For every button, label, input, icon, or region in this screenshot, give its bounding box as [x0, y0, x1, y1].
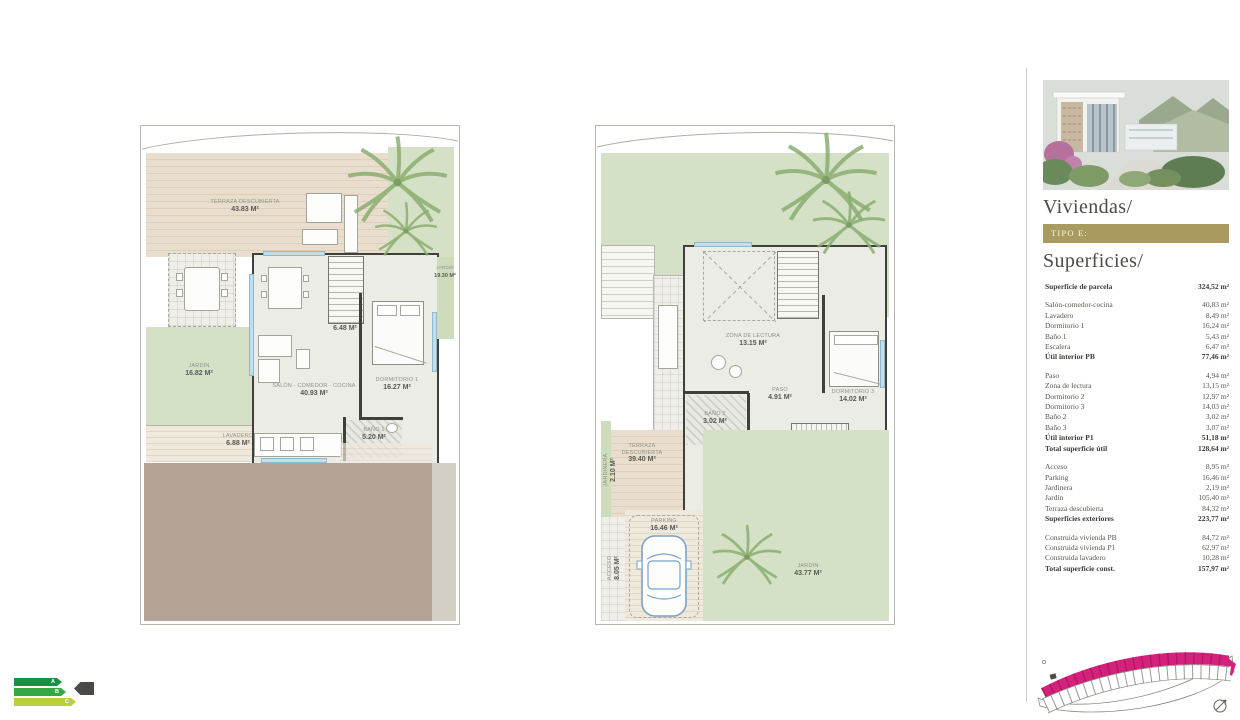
acceso-label: ACCESO 8.05 m² [607, 541, 621, 595]
surface-label: Útil interior PB [1045, 352, 1095, 362]
window-pb-west [250, 275, 253, 375]
garden-top-right-pb [388, 147, 454, 257]
surface-label: Parking [1045, 473, 1068, 483]
surface-value: 51,18 m² [1202, 433, 1229, 443]
surface-row: Construida lavadero 10,28 m² [1045, 553, 1229, 563]
staircase-p1 [777, 251, 819, 319]
surface-row: Dormitorio 1 16,24 m² [1045, 321, 1229, 331]
surface-row: Zona de lectura 13,15 m² [1045, 381, 1229, 391]
surface-label: Jardinera [1045, 483, 1072, 493]
surface-value: 223,77 m² [1198, 514, 1229, 524]
dormitorio3-label: DORMITORIO 3 14.02 m² [825, 389, 881, 403]
surface-value: 40,83 m² [1202, 300, 1229, 310]
surface-value: 8,95 m² [1206, 462, 1229, 472]
surface-label: Total superficie const. [1045, 564, 1115, 574]
jardin-left-label: JARDÍN 16.82 m² [168, 363, 230, 377]
garden-bottom-p1 [703, 430, 889, 621]
dormitorio1-label: DORMITORIO 1 16.27 m² [366, 377, 428, 391]
surface-label: Acceso [1045, 462, 1067, 472]
window-p1-north [695, 243, 751, 246]
outdoor-sofa-drawing [306, 193, 342, 223]
energy-rating-icon: A B C [12, 676, 122, 716]
sidebar-divider [1026, 68, 1027, 702]
surface-label: Superficie de parcela [1045, 282, 1112, 292]
bed-drawing-dorm1 [372, 301, 424, 365]
surface-label: Escalera [1045, 342, 1070, 352]
surface-value: 13,15 m² [1202, 381, 1229, 391]
surface-value: 128,64 m² [1198, 444, 1229, 454]
surface-value: 2,19 m² [1206, 483, 1229, 493]
surface-value: 10,28 m² [1202, 553, 1229, 563]
terraza-pb-label: TERRAZA DESCUBIERTA 43.83 m² [200, 199, 290, 213]
surface-row: Dormitorio 3 14,03 m² [1045, 402, 1229, 412]
surface-label: Construida lavadero [1045, 553, 1106, 563]
sofa-drawing [258, 335, 292, 357]
surface-value: 6,47 m² [1206, 342, 1229, 352]
surface-row: Superficie de parcela 324,52 m² [1045, 282, 1229, 292]
double-height-void [703, 251, 775, 321]
surface-label: Paso [1045, 371, 1059, 381]
surface-row: Acceso 8,95 m² [1045, 462, 1229, 472]
terraza-p1-label: TERRAZA DESCUBIERTA 39.40 m² [609, 443, 675, 464]
floor-plan-ground: TERRAZA DESCUBIERTA 43.83 m² JARDÍN 16.8… [140, 125, 460, 625]
car-drawing [635, 533, 693, 619]
surface-row: Dormitorio 2 12,97 m² [1045, 392, 1229, 402]
surface-row: Total superficie const. 157,97 m² [1045, 564, 1229, 574]
armchair-drawing [711, 355, 726, 370]
surface-label: Zona de lectura [1045, 381, 1092, 391]
armchair-drawing [729, 365, 742, 378]
surface-label: Superficies exteriores [1045, 514, 1114, 524]
surface-row: Baño 3 3,07 m² [1045, 423, 1229, 433]
surface-label: Baño 3 [1045, 423, 1066, 433]
surface-label: Construida vivienda PB [1045, 533, 1117, 543]
terrain-zone-pb [144, 463, 432, 621]
jardin-right-label: JARDÍN 19.30 m² [424, 265, 466, 279]
surface-row: Salón-comedor-cocina 40,83 m² [1045, 300, 1229, 310]
north-arrow-icon [1214, 700, 1226, 712]
site-plan-graphic [1028, 632, 1240, 720]
surface-row: Baño 2 3,02 m² [1045, 412, 1229, 422]
surface-label: Lavadero [1045, 311, 1073, 321]
surface-value: 8,49 m² [1206, 311, 1229, 321]
surface-row: Total superficie útil 128,64 m² [1045, 444, 1229, 454]
jardin-p1-label: JARDÍN 43.77 m² [777, 563, 839, 577]
surface-label: Dormitorio 3 [1045, 402, 1084, 412]
surface-value: 84,32 m² [1202, 504, 1229, 514]
surface-label: Construida vivienda P1 [1045, 543, 1115, 553]
surface-value: 105,40 m² [1198, 493, 1229, 503]
sink-drawing [386, 423, 398, 433]
surface-value: 157,97 m² [1198, 564, 1229, 574]
surface-row: Construida vivienda PB 84,72 m² [1045, 533, 1229, 543]
surface-row: Construida vivienda P1 62,97 m² [1045, 543, 1229, 553]
energy-bar-b: B [14, 688, 66, 696]
surface-row: Parking 16,46 m² [1045, 473, 1229, 483]
floor-plan-first: ZONA DE LECTURA 13.15 m² PASO 4.91 m² BA… [595, 125, 895, 625]
surface-label: Dormitorio 2 [1045, 392, 1084, 402]
surface-value: 16,46 m² [1202, 473, 1229, 483]
surface-value: 3,07 m² [1206, 423, 1229, 433]
energy-pointer-icon [74, 682, 94, 695]
type-badge: TIPO E: [1043, 224, 1229, 243]
energy-bar-c: C [14, 698, 76, 706]
window-pb-north [264, 252, 324, 255]
energy-bar-a: A [14, 678, 62, 686]
surface-label: Baño 1 [1045, 332, 1066, 342]
surface-row: Baño 1 5,43 m² [1045, 332, 1229, 342]
surface-label: Útil interior P1 [1045, 433, 1094, 443]
villa-photo [1043, 80, 1229, 190]
surface-row: Útil interior P1 51,18 m² [1045, 433, 1229, 443]
surface-label: Terraza descubierta [1045, 504, 1103, 514]
surface-value: 5,43 m² [1206, 332, 1229, 342]
salon-label: SALÓN - COMEDOR - COCINA 40.93 m² [258, 383, 370, 397]
surface-value: 16,24 m² [1202, 321, 1229, 331]
surfaces-list: Superficie de parcela 324,52 m² Salón-co… [1045, 282, 1229, 574]
surface-row: Jardín 105,40 m² [1045, 493, 1229, 503]
lounger-drawing [658, 305, 678, 369]
surface-value: 3,02 m² [1206, 412, 1229, 422]
dining-table-drawing [184, 267, 220, 311]
surface-row: Útil interior PB 77,46 m² [1045, 352, 1229, 362]
surface-value: 77,46 m² [1202, 352, 1229, 362]
surface-value: 84,72 m² [1202, 533, 1229, 543]
glass-door-pb-south [262, 459, 326, 462]
parking-label: PARKING 16.46 m² [633, 518, 695, 532]
surface-label: Baño 2 [1045, 412, 1066, 422]
surface-row: Jardinera 2,19 m² [1045, 483, 1229, 493]
paso-label: PASO 4.91 m² [753, 387, 807, 401]
sidebar-subtitle: Superficies/ [1043, 250, 1143, 273]
surface-label: Total superficie útil [1045, 444, 1107, 454]
sidebar-title: Viviendas/ [1043, 196, 1132, 219]
site-boundary-curve [595, 125, 895, 155]
surface-row: Terraza descubierta 84,32 m² [1045, 504, 1229, 514]
window-pb-east [433, 313, 436, 371]
surface-value: 4,94 m² [1206, 371, 1229, 381]
surface-value: 14,03 m² [1202, 402, 1229, 412]
surface-value: 12,97 m² [1202, 392, 1229, 402]
bano2-label: BAÑO 2 3.02 m² [691, 411, 739, 425]
zona-lectura-label: ZONA DE LECTURA 13.15 m² [707, 333, 799, 347]
pergola-stripes [601, 245, 655, 319]
surface-label: Jardín [1045, 493, 1063, 503]
bed-drawing-dorm3 [829, 331, 879, 387]
int-dining-table-drawing [268, 267, 302, 309]
surface-row: Superficies exteriores 223,77 m² [1045, 514, 1229, 524]
jardinera-label: JARDINERA 2.10 m² [603, 443, 617, 497]
surface-value: 62,97 m² [1202, 543, 1229, 553]
surface-row: Paso 4,94 m² [1045, 371, 1229, 381]
window-p1-east [881, 341, 884, 387]
surface-row: Lavadero 8,49 m² [1045, 311, 1229, 321]
surface-value: 324,52 m² [1198, 282, 1229, 292]
brochure-page: TERRAZA DESCUBIERTA 43.83 m² JARDÍN 16.8… [0, 0, 1240, 720]
surface-label: Salón-comedor-cocina [1045, 300, 1113, 310]
coffee-table-drawing [296, 349, 310, 369]
surface-row: Escalera 6,47 m² [1045, 342, 1229, 352]
surface-label: Dormitorio 1 [1045, 321, 1084, 331]
